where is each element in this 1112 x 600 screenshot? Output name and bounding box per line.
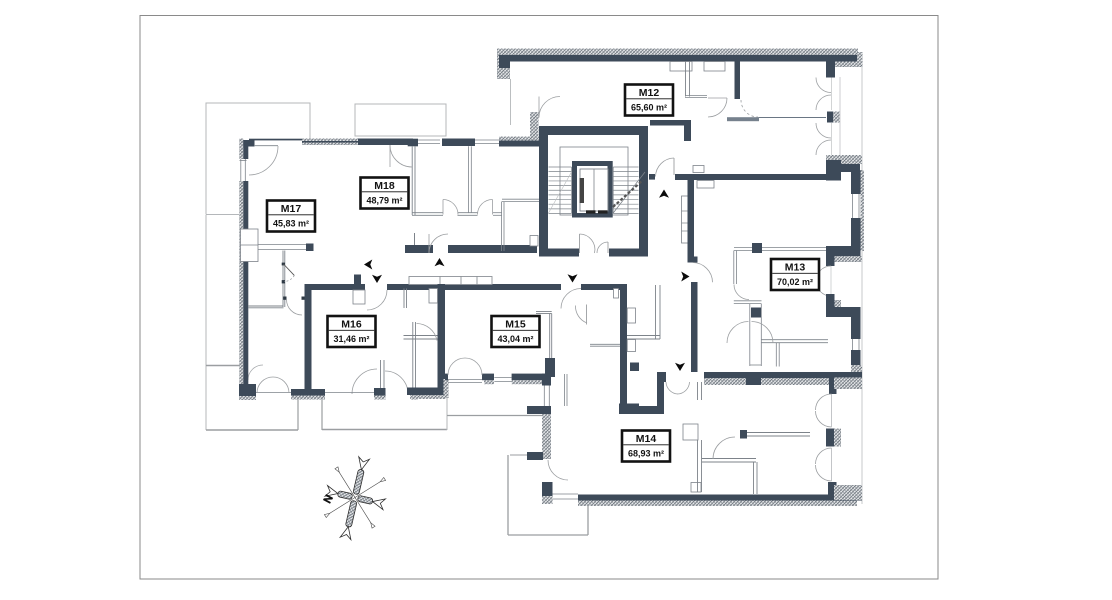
svg-text:31,46 m²: 31,46 m² [333, 334, 369, 344]
svg-text:M13: M13 [785, 261, 806, 273]
svg-text:48,79 m²: 48,79 m² [366, 196, 402, 206]
svg-text:M16: M16 [341, 318, 362, 330]
svg-text:M18: M18 [374, 180, 395, 192]
svg-text:70,02 m²: 70,02 m² [777, 277, 813, 287]
svg-text:M17: M17 [281, 203, 302, 215]
svg-text:45,83 m²: 45,83 m² [273, 219, 309, 229]
svg-text:68,93 m²: 68,93 m² [628, 449, 664, 459]
svg-text:M12: M12 [639, 87, 660, 99]
svg-text:M14: M14 [636, 433, 657, 445]
svg-text:43,04 m²: 43,04 m² [497, 334, 533, 344]
svg-text:65,60 m²: 65,60 m² [631, 103, 667, 113]
svg-text:M15: M15 [505, 318, 526, 330]
